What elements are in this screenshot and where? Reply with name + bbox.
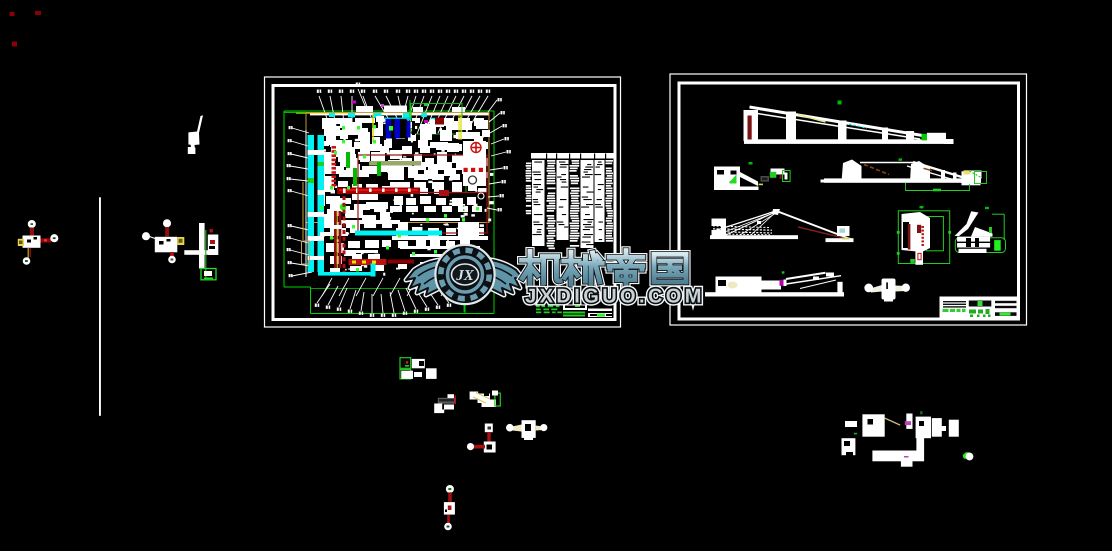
svg-text:JX: JX [455, 268, 475, 284]
svg-text:JXDIGUO.COM: JXDIGUO.COM [525, 286, 705, 308]
